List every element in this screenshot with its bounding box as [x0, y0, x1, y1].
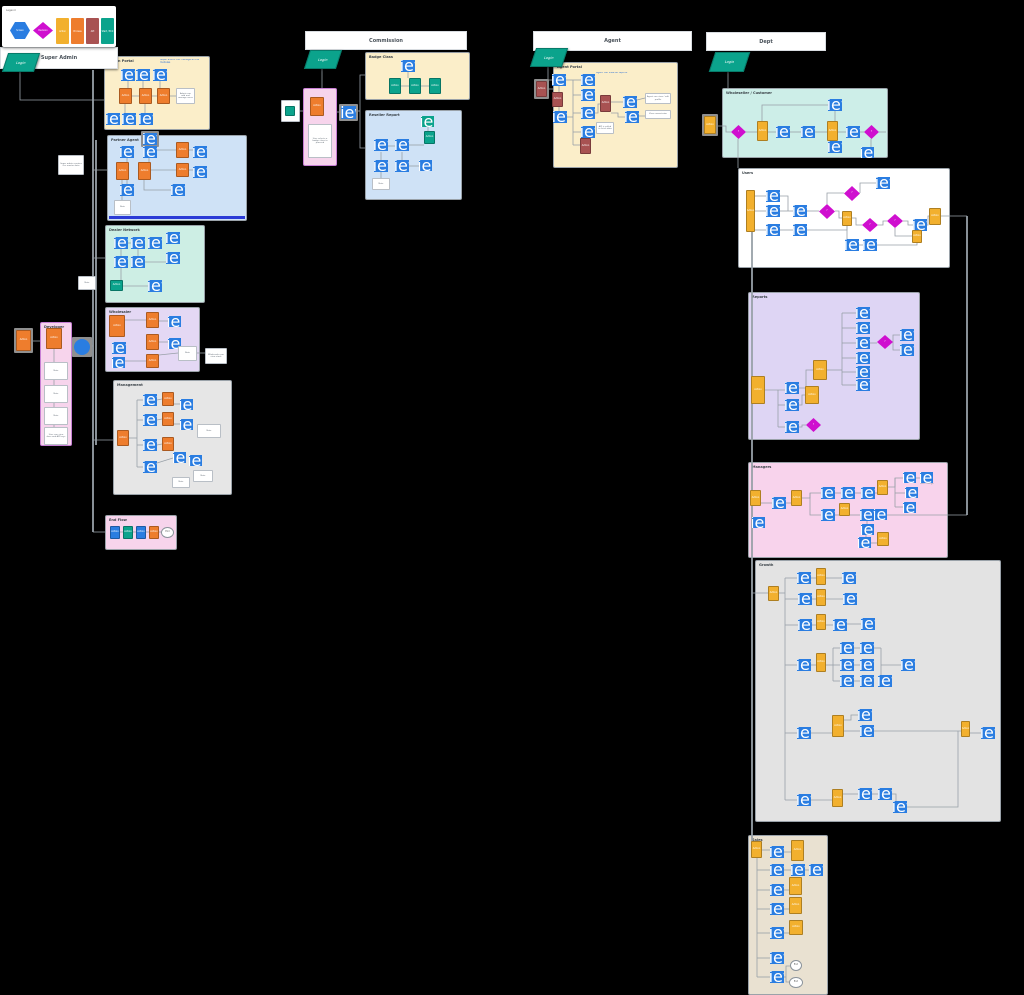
hexagon-node[interactable]: View	[903, 472, 916, 483]
hexagon-node[interactable]: View	[858, 788, 872, 800]
process-rect[interactable]: Action	[600, 95, 611, 112]
hexagon-node[interactable]: View	[766, 224, 780, 236]
node-label: End	[794, 981, 798, 983]
hexagon-node[interactable]: View	[793, 224, 807, 236]
process-rect[interactable]: Action	[123, 526, 133, 539]
node-label: User selects a badge class to proceed	[310, 138, 330, 145]
hexagon-node[interactable]: View	[846, 126, 860, 138]
node-label: View	[797, 659, 811, 671]
hexagon-node[interactable]: View	[168, 316, 181, 327]
hexagon-node[interactable]: View	[581, 74, 595, 86]
node-label: View	[770, 846, 784, 858]
node-label: View	[856, 322, 870, 334]
node-label: View	[798, 619, 812, 631]
node-label: Wholesaler can view stock	[207, 354, 225, 359]
hexagon-node[interactable]: View	[860, 642, 874, 654]
node-label: Action	[119, 170, 127, 173]
node-label: View	[421, 116, 434, 127]
node-label: ?	[884, 341, 885, 343]
hexagon-node[interactable]: View	[552, 74, 566, 86]
process-rect[interactable]: Action	[789, 897, 802, 914]
node-label: View	[863, 239, 877, 251]
process-rect[interactable]: Action	[580, 138, 591, 154]
connector-circle[interactable]	[74, 339, 90, 355]
hexagon-node[interactable]: View	[166, 232, 180, 244]
node-label: View	[843, 593, 857, 605]
hexagon-node[interactable]: View	[581, 107, 595, 119]
hexagon-node[interactable]: View	[770, 903, 784, 915]
hexagon-node[interactable]: View	[374, 160, 388, 172]
hexagon-node[interactable]: View	[842, 572, 856, 584]
hexagon-node[interactable]: View	[858, 709, 872, 721]
node-label: Note	[54, 393, 59, 395]
hexagon-node[interactable]: View	[797, 727, 811, 739]
hexagon-node[interactable]: View	[821, 487, 835, 499]
node-label: View	[625, 111, 639, 123]
start-parallelogram[interactable]: Login	[709, 52, 750, 72]
hexagon-node[interactable]: View	[785, 382, 799, 394]
hexagon-node[interactable]: View	[903, 502, 916, 513]
process-rect[interactable]: Action	[176, 163, 189, 177]
hexagon-node[interactable]: View	[770, 846, 784, 858]
hexagon-node[interactable]: View	[770, 864, 784, 876]
hexagon-node[interactable]: View	[856, 379, 870, 391]
legend-title: Legend	[6, 9, 16, 12]
note-card[interactable]: User selects a badge class to proceed	[308, 124, 332, 158]
legend-item-label: Screen	[16, 29, 24, 32]
hexagon-node[interactable]: View	[776, 126, 790, 138]
hexagon-node[interactable]: View	[131, 256, 145, 268]
process-rect[interactable]: Action	[138, 162, 151, 180]
node-label: Action	[817, 661, 825, 664]
node-label: View	[143, 133, 157, 145]
hexagon-node[interactable]: View	[841, 487, 855, 499]
process-rect[interactable]: Action	[912, 230, 922, 243]
hexagon-node[interactable]: View	[623, 96, 637, 108]
node-label: Action	[142, 95, 150, 98]
legend-rect-api[interactable]: API	[86, 18, 99, 44]
hexagon-node[interactable]: View	[858, 537, 871, 548]
hexagon-node[interactable]: View	[180, 399, 193, 410]
process-rect[interactable]: Action	[877, 532, 889, 546]
node-label: View	[623, 96, 637, 108]
process-rect[interactable]: Action	[136, 526, 146, 539]
node-label: Action	[792, 885, 800, 888]
hexagon-node[interactable]: View	[856, 307, 870, 319]
terminator-ellipse[interactable]: End	[790, 960, 802, 971]
hexagon-node[interactable]: View	[752, 517, 765, 528]
hexagon-node[interactable]: View	[122, 113, 136, 125]
hexagon-node[interactable]: View	[981, 727, 995, 739]
process-rect[interactable]: Action	[746, 190, 755, 232]
node-label: View	[114, 256, 128, 268]
legend-diamond-decision[interactable]: Decision	[33, 22, 53, 39]
node-label: Action	[834, 797, 842, 800]
node-label: Super admin creates the master data	[60, 163, 82, 168]
process-rect[interactable]: Action	[805, 386, 819, 404]
hexagon-node[interactable]: View	[189, 455, 202, 466]
node-label: Action	[913, 235, 921, 238]
annotation-text: Super admin can manage all the modules	[160, 59, 206, 67]
node-label: Action	[179, 169, 187, 172]
node-label: Note	[120, 206, 125, 208]
node-label: View	[581, 107, 595, 119]
legend-rect-action[interactable]: Action	[56, 18, 69, 44]
hexagon-node[interactable]: View	[861, 147, 874, 158]
hexagon-node[interactable]: View	[770, 927, 784, 939]
node-label: View	[772, 497, 786, 509]
hexagon-node[interactable]: View	[770, 952, 784, 964]
hexagon-node[interactable]: View	[770, 971, 784, 983]
node-label: View commission	[649, 113, 667, 115]
hexagon-node[interactable]: View	[131, 237, 145, 249]
note-card[interactable]: View commission	[645, 110, 671, 119]
hexagon-node[interactable]: View	[840, 642, 854, 654]
hexagon-node[interactable]: View	[106, 113, 120, 125]
hexagon-node[interactable]: View	[136, 69, 150, 81]
legend-rect-process[interactable]: Process	[71, 18, 84, 44]
start-label: Login	[16, 61, 27, 65]
hexagon-node[interactable]: View	[878, 675, 892, 687]
start-parallelogram[interactable]: Login	[2, 53, 40, 72]
hexagon-node[interactable]: View	[112, 357, 125, 368]
hexagon-node[interactable]: View	[148, 280, 162, 292]
hexagon-node[interactable]: View	[797, 572, 811, 584]
hexagon-node[interactable]: View	[143, 146, 157, 158]
process-rect[interactable]: Action	[16, 330, 31, 351]
hexagon-node[interactable]: View	[143, 461, 157, 473]
hexagon-node[interactable]: View	[828, 99, 842, 111]
node-label: View	[770, 903, 784, 915]
node-label: Action	[313, 105, 321, 108]
process-rect[interactable]: Action	[816, 653, 826, 672]
process-rect[interactable]: Action	[832, 715, 844, 737]
process-rect[interactable]: Action	[157, 88, 170, 104]
note-card[interactable]: Agent can view / edit profile	[645, 93, 671, 104]
process-rect[interactable]: Action	[832, 789, 843, 807]
node-label: View	[173, 452, 186, 463]
process-rect[interactable]: Action	[751, 841, 762, 858]
process-rect[interactable]: Action	[827, 121, 838, 141]
process-rect[interactable]: Action	[813, 360, 827, 380]
process-rect[interactable]: Action	[149, 526, 159, 539]
hexagon-node[interactable]: View	[861, 618, 875, 630]
process-rect[interactable]: Action	[46, 328, 62, 349]
process-rect[interactable]: Action	[162, 392, 174, 406]
process-rect[interactable]: Action	[146, 312, 159, 328]
node-label: View	[166, 232, 180, 244]
process-rect[interactable]: Action	[117, 430, 129, 446]
node-label: Note	[185, 352, 190, 354]
node-label: View	[193, 146, 207, 158]
hexagon-node[interactable]: View	[861, 524, 874, 535]
node-label: View	[793, 205, 807, 217]
hexagon-node[interactable]: View	[770, 884, 784, 896]
hexagon-node[interactable]: View	[860, 675, 874, 687]
hexagon-node[interactable]: View	[793, 205, 807, 217]
node-label: View	[860, 659, 874, 671]
process-rect[interactable]: Action	[162, 437, 174, 451]
node-label: View	[858, 537, 871, 548]
node-label: Note	[201, 475, 206, 477]
hexagon-node[interactable]: View	[920, 472, 933, 483]
hexagon-node[interactable]: View	[901, 659, 915, 671]
note-card[interactable]: Super admin creates the master data	[58, 155, 84, 175]
process-rect[interactable]: Action	[816, 568, 826, 585]
process-rect[interactable]: Action	[409, 78, 421, 94]
process-rect[interactable]: Action	[791, 840, 804, 861]
process-rect[interactable]: Action	[961, 721, 970, 737]
process-rect[interactable]: Action	[116, 162, 129, 180]
process-rect[interactable]: Action	[389, 78, 401, 94]
process-rect[interactable]	[285, 106, 295, 116]
hexagon-node[interactable]: View	[791, 864, 805, 876]
hexagon-node[interactable]: View	[112, 342, 126, 354]
node-label: View	[112, 342, 126, 354]
flowchart-canvas: Admin PortalPartner AgentDealer NetworkW…	[0, 0, 1024, 995]
hexagon-node[interactable]: View	[860, 659, 874, 671]
node-label: View	[106, 113, 120, 125]
node-label: Action	[431, 85, 439, 88]
process-rect[interactable]: Action	[751, 376, 765, 404]
hexagon-node[interactable]: View	[874, 509, 887, 520]
node-label: Agent can view / edit profile	[647, 96, 669, 101]
note-card[interactable]: Note	[172, 477, 190, 488]
hexagon-node[interactable]: View	[581, 126, 595, 138]
node-label: Action	[141, 170, 149, 173]
note-card[interactable]: Note	[78, 276, 96, 290]
terminator-ellipse[interactable]: End	[161, 527, 174, 538]
node-label: View	[131, 237, 145, 249]
node-label: Action	[149, 341, 157, 344]
hexagon-node[interactable]: View	[828, 141, 842, 153]
hexagon-node[interactable]: View	[845, 239, 859, 251]
hexagon-node[interactable]: View	[766, 190, 780, 202]
node-label: View	[401, 60, 415, 72]
node-label: View	[766, 224, 780, 236]
hexagon-node[interactable]: View	[121, 69, 135, 81]
legend-rect-start-end[interactable]: Start / End	[101, 18, 114, 44]
hexagon-node[interactable]: View	[421, 116, 434, 127]
process-rect[interactable]: Action	[310, 97, 324, 116]
node-label: View	[143, 414, 157, 426]
hexagon-node[interactable]: View	[856, 337, 870, 349]
process-rect[interactable]: Action	[839, 503, 850, 516]
node-label: Note	[207, 430, 212, 432]
node-label: Action	[841, 508, 849, 511]
hexagon-node[interactable]: View	[856, 322, 870, 334]
note-card[interactable]: Admin can add and manage users	[176, 88, 195, 104]
process-rect[interactable]: Action	[110, 526, 120, 539]
hexagon-node[interactable]: View	[581, 89, 595, 101]
hexagon-node[interactable]: View	[840, 659, 854, 671]
hexagon-node[interactable]: View	[801, 126, 815, 138]
node-label: View	[168, 316, 181, 327]
hexagon-node[interactable]: View	[797, 659, 811, 671]
node-label: View	[861, 524, 874, 535]
hexagon-node[interactable]: View	[809, 864, 823, 876]
process-rect[interactable]: Action	[536, 81, 547, 97]
node-label: View	[395, 139, 409, 151]
hexagon-node[interactable]: View	[153, 69, 167, 81]
process-rect[interactable]: Action	[816, 614, 826, 630]
hexagon-node[interactable]: View	[861, 487, 875, 499]
hexagon-node[interactable]: View	[772, 497, 786, 509]
process-rect[interactable]: Action	[119, 88, 132, 104]
hexagon-node[interactable]: View	[180, 419, 193, 430]
hexagon-node[interactable]: View	[785, 399, 799, 411]
hexagon-node[interactable]: View	[860, 509, 874, 521]
start-label: Login	[544, 56, 555, 60]
hexagon-node[interactable]: View	[766, 205, 780, 217]
process-rect[interactable]: Action	[877, 480, 888, 495]
process-rect[interactable]: Action	[757, 121, 768, 141]
process-rect[interactable]: Action	[429, 78, 441, 94]
process-rect[interactable]: Action	[789, 920, 803, 935]
process-rect[interactable]: Action	[704, 116, 716, 134]
node-label: View	[856, 379, 870, 391]
hexagon-node[interactable]: View	[395, 160, 409, 172]
node-label: View	[114, 237, 128, 249]
node-label: View	[893, 801, 907, 813]
process-rect[interactable]: Action	[791, 490, 802, 506]
process-rect[interactable]: Action	[146, 334, 159, 350]
note-card[interactable]: Note	[44, 362, 68, 380]
process-rect[interactable]: Action	[176, 142, 189, 158]
hexagon-node[interactable]: View	[171, 184, 185, 196]
process-rect[interactable]: Action	[146, 354, 159, 368]
process-rect[interactable]: Action	[789, 877, 802, 895]
hexagon-node[interactable]: View	[625, 111, 639, 123]
node-label: Agent can view all reports	[596, 72, 627, 75]
note-card[interactable]: API is called to fetch data	[596, 122, 614, 134]
process-rect[interactable]: Action	[552, 92, 563, 107]
hexagon-node[interactable]: View	[821, 509, 835, 521]
hexagon-node[interactable]: View	[797, 794, 811, 806]
note-card[interactable]: Note	[178, 346, 197, 361]
node-label: Note	[54, 370, 59, 372]
process-rect[interactable]: Action	[110, 280, 123, 291]
note-card[interactable]: Note	[372, 178, 390, 190]
legend-hex-screen[interactable]: Screen	[10, 22, 30, 39]
node-label: View	[120, 184, 134, 196]
hexagon-node[interactable]: View	[893, 801, 907, 813]
hexagon-node[interactable]: View	[148, 237, 162, 249]
process-rect[interactable]: Action	[139, 88, 152, 104]
hexagon-node[interactable]: View	[419, 160, 432, 171]
node-label: Action	[50, 337, 58, 340]
hexagon-node[interactable]: View	[876, 177, 890, 189]
process-rect[interactable]: Action	[424, 131, 435, 144]
node-label: Action	[164, 443, 172, 446]
hexagon-node[interactable]: View	[833, 619, 847, 631]
hexagon-node[interactable]: View	[193, 166, 207, 178]
node-label: View	[903, 502, 916, 513]
hexagon-node[interactable]: View	[860, 725, 874, 737]
start-label: Login	[724, 60, 735, 64]
hexagon-node[interactable]: View	[120, 184, 134, 196]
hexagon-node[interactable]: View	[863, 239, 877, 251]
note-card[interactable]: Note	[44, 407, 68, 425]
hexagon-node[interactable]: View	[114, 237, 128, 249]
node-label: View	[374, 160, 388, 172]
node-label: Action	[754, 389, 762, 392]
hexagon-node[interactable]: View	[143, 414, 157, 426]
note-card[interactable]: User can view docs and API keys	[44, 427, 68, 445]
node-label: View	[841, 487, 855, 499]
node-label: View	[901, 659, 915, 671]
process-rect[interactable]: Action	[109, 315, 125, 337]
start-parallelogram[interactable]: Login	[530, 48, 568, 67]
legend-card[interactable]: LegendScreenDecisionActionProcessAPIStar…	[2, 6, 116, 47]
note-card[interactable]: Note	[193, 470, 213, 482]
hexagon-node[interactable]: View	[114, 256, 128, 268]
hexagon-node[interactable]: View	[856, 352, 870, 364]
hexagon-node[interactable]: View	[785, 421, 799, 433]
hexagon-node[interactable]: View	[341, 106, 356, 119]
hexagon-node[interactable]: View	[856, 366, 870, 378]
node-label: Action	[931, 215, 939, 218]
hexagon-node[interactable]: View	[401, 60, 415, 72]
note-card[interactable]: Wholesaler can view stock	[205, 348, 227, 364]
hexagon-node[interactable]: View	[798, 593, 812, 605]
hexagon-node[interactable]: View	[798, 619, 812, 631]
process-rect[interactable]: Action	[816, 589, 826, 606]
hexagon-node[interactable]: View	[143, 394, 157, 406]
note-card[interactable]: Note	[44, 385, 68, 403]
process-rect[interactable]: Action	[842, 211, 852, 226]
process-rect[interactable]: Action	[750, 490, 761, 506]
hexagon-node[interactable]: View	[193, 146, 207, 158]
process-rect[interactable]: Action	[929, 208, 941, 225]
hexagon-node[interactable]: View	[905, 487, 918, 498]
node-label: View	[801, 126, 815, 138]
process-rect[interactable]: Action	[162, 412, 174, 426]
hexagon-node[interactable]: View	[166, 252, 180, 264]
hexagon-node[interactable]: View	[900, 329, 914, 341]
node-label: Action	[119, 437, 127, 440]
hexagon-node[interactable]: View	[143, 133, 157, 145]
note-card[interactable]: Note	[114, 200, 131, 215]
hexagon-node[interactable]: View	[553, 111, 567, 123]
hexagon-node[interactable]: View	[395, 139, 409, 151]
node-label: View	[856, 307, 870, 319]
hexagon-node[interactable]: View	[843, 593, 857, 605]
note-card[interactable]: Note	[197, 424, 221, 438]
hexagon-node[interactable]: View	[173, 452, 186, 463]
node-label: View	[180, 419, 193, 430]
node-label: Action	[111, 531, 119, 534]
hexagon-node[interactable]: View	[900, 344, 914, 356]
terminator-ellipse[interactable]: End	[789, 977, 803, 988]
node-label: View	[581, 126, 595, 138]
hexagon-node[interactable]: View	[139, 113, 153, 125]
legend-item-label: Start / End	[102, 30, 114, 33]
node-label: View	[861, 487, 875, 499]
hexagon-node[interactable]: View	[120, 146, 134, 158]
node-label: User can view docs and API keys	[46, 434, 66, 439]
hexagon-node[interactable]: View	[878, 788, 892, 800]
hexagon-node[interactable]: View	[143, 439, 157, 451]
hexagon-node[interactable]: View	[840, 675, 854, 687]
node-label: View	[143, 146, 157, 158]
hexagon-node[interactable]: View	[374, 139, 388, 151]
node-label: View	[139, 113, 153, 125]
node-label: Action	[426, 136, 434, 139]
process-rect[interactable]: Action	[768, 586, 779, 601]
node-label: View	[120, 146, 134, 158]
start-parallelogram[interactable]: Login	[304, 50, 342, 69]
